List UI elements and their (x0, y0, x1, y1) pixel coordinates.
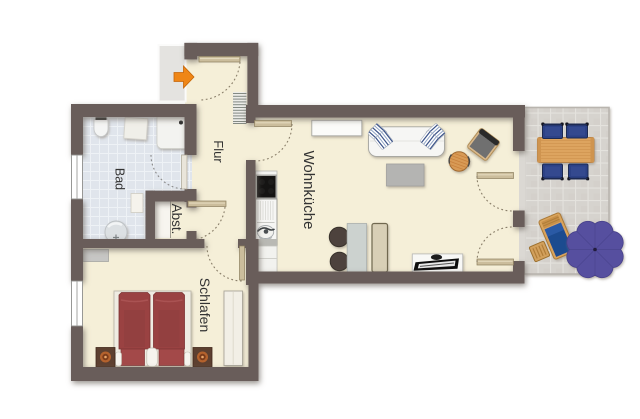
svg-text:Abst.: Abst. (169, 204, 184, 235)
svg-text:Flur: Flur (211, 140, 226, 163)
svg-text:Bad: Bad (113, 168, 127, 190)
svg-text:Wohnküche: Wohnküche (300, 151, 317, 230)
svg-text:Schlafen: Schlafen (197, 278, 213, 332)
